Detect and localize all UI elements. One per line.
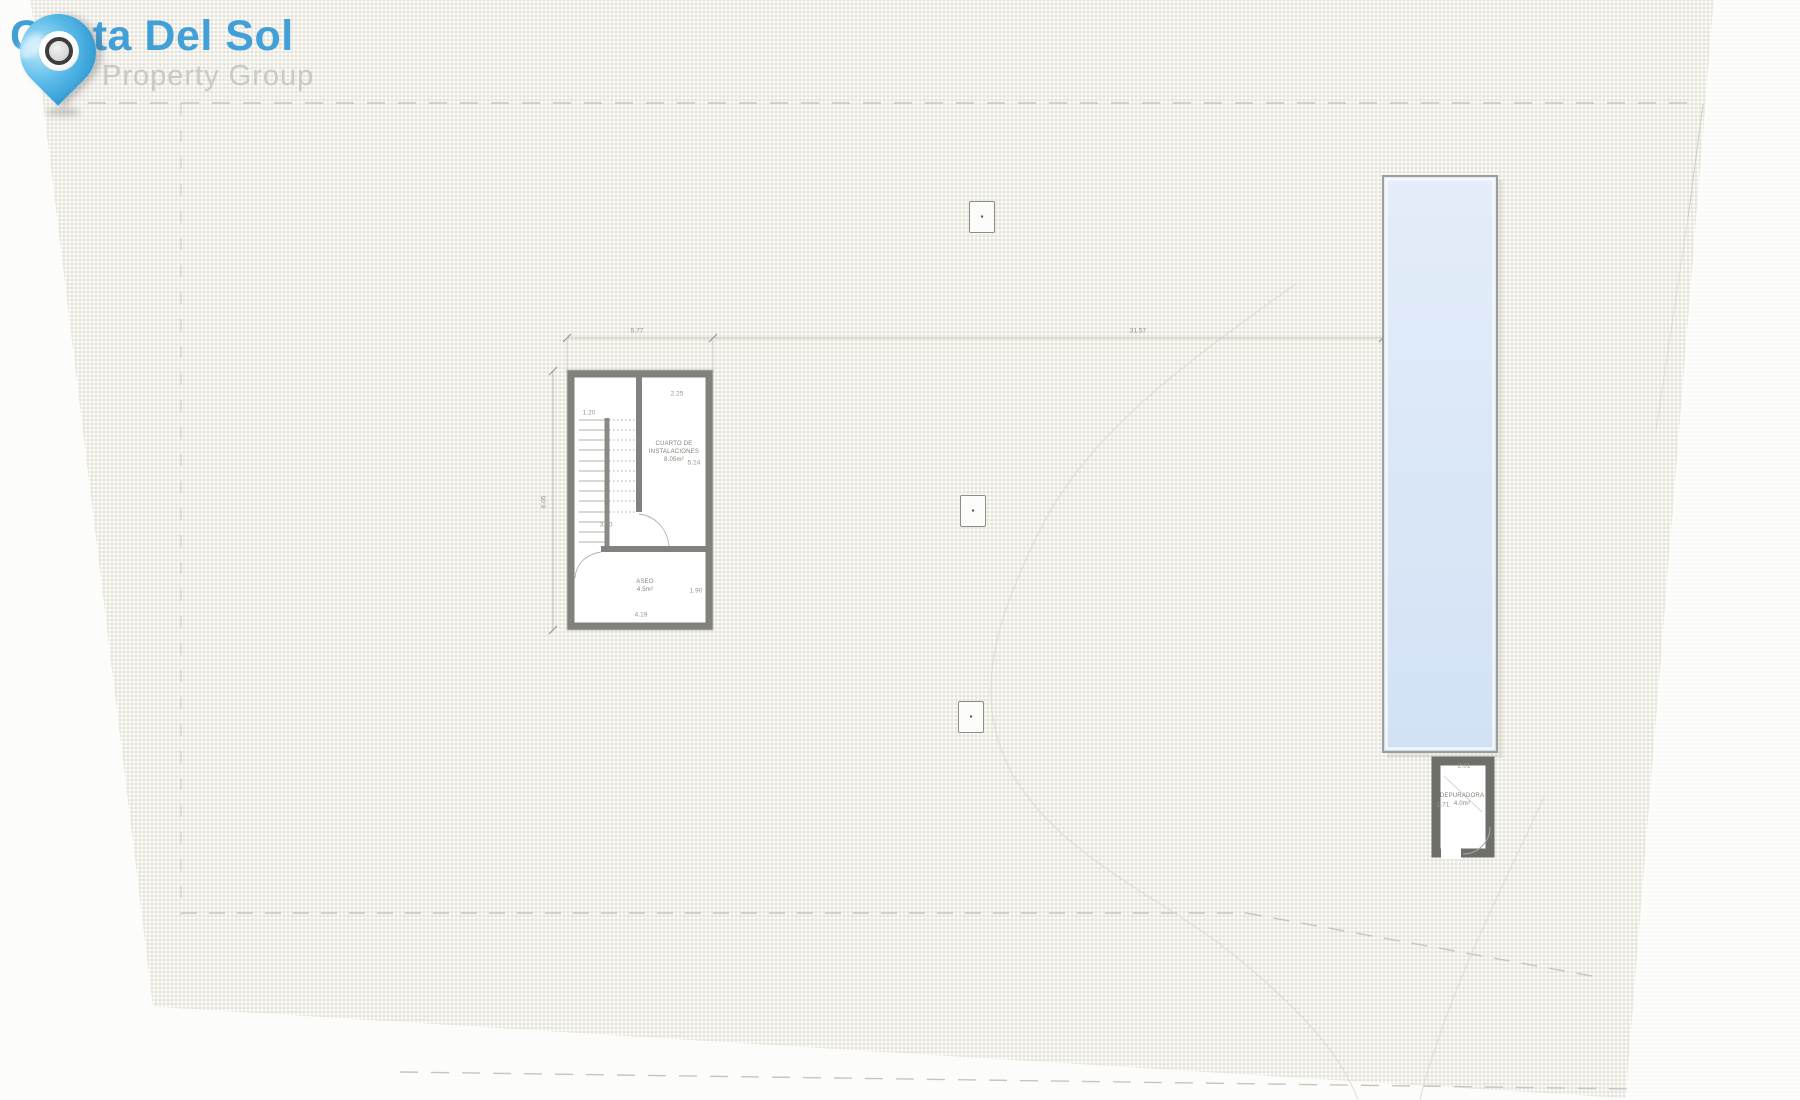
pool-plant-room bbox=[1436, 761, 1490, 859]
utility-marker-icon: ▪ bbox=[981, 213, 984, 221]
dim-pool-room-width: 2.31 bbox=[1458, 763, 1471, 770]
pin-hole-ring bbox=[45, 37, 73, 65]
utility-marker-icon: ▪ bbox=[972, 507, 975, 515]
room-name: DEPURADORA bbox=[1440, 792, 1484, 800]
boundary-inner-diagonal bbox=[1246, 913, 1592, 976]
utility-marker: ▪ bbox=[960, 495, 986, 527]
swimming-pool bbox=[1383, 176, 1497, 752]
room-name: CUARTO DE bbox=[649, 440, 699, 448]
boundary-right-corner bbox=[1656, 104, 1703, 430]
logo-subtitle: Property Group bbox=[102, 60, 314, 93]
dim-building-height: 6.05 bbox=[541, 496, 548, 509]
boundary-outer-bottom bbox=[400, 1072, 1632, 1089]
room-area: 8.05m² bbox=[649, 456, 699, 464]
site-plan-page: 5.77 31.57 6.05 1.20 3.00 2.25 5.24 4.19… bbox=[0, 0, 1800, 1100]
dim-room2-height: 1.90 bbox=[690, 588, 703, 595]
dim-room1-width: 2.25 bbox=[671, 391, 684, 398]
logo: Costa Del Sol Property Group bbox=[0, 0, 420, 140]
room-label-pool-room: DEPURADORA 4.0m² bbox=[1440, 792, 1484, 808]
utility-marker: ▪ bbox=[969, 201, 995, 233]
pin-hole bbox=[39, 31, 79, 71]
room-area: 4.0m² bbox=[1440, 800, 1484, 808]
dim-stair-landing: 3.00 bbox=[600, 522, 613, 529]
room-label-aseo: ASEO 4.5m² bbox=[636, 578, 653, 594]
utility-marker: ▪ bbox=[958, 701, 984, 733]
room-area: 4.5m² bbox=[636, 586, 653, 594]
map-pin-icon bbox=[8, 4, 118, 124]
dim-building-width: 5.77 bbox=[631, 328, 644, 335]
room-name: INSTALACIONES bbox=[649, 448, 699, 456]
room-label-installations: CUARTO DE INSTALACIONES 8.05m² bbox=[649, 440, 699, 464]
dim-room2-width: 4.19 bbox=[635, 612, 648, 619]
pin-shadow bbox=[46, 108, 80, 116]
dim-building-to-pool: 31.57 bbox=[1130, 328, 1146, 335]
room-name: ASEO bbox=[636, 578, 653, 586]
dim-stair-width: 1.20 bbox=[583, 410, 596, 417]
utility-marker-icon: ▪ bbox=[970, 713, 973, 721]
site-plan-drawing bbox=[0, 0, 1800, 1100]
